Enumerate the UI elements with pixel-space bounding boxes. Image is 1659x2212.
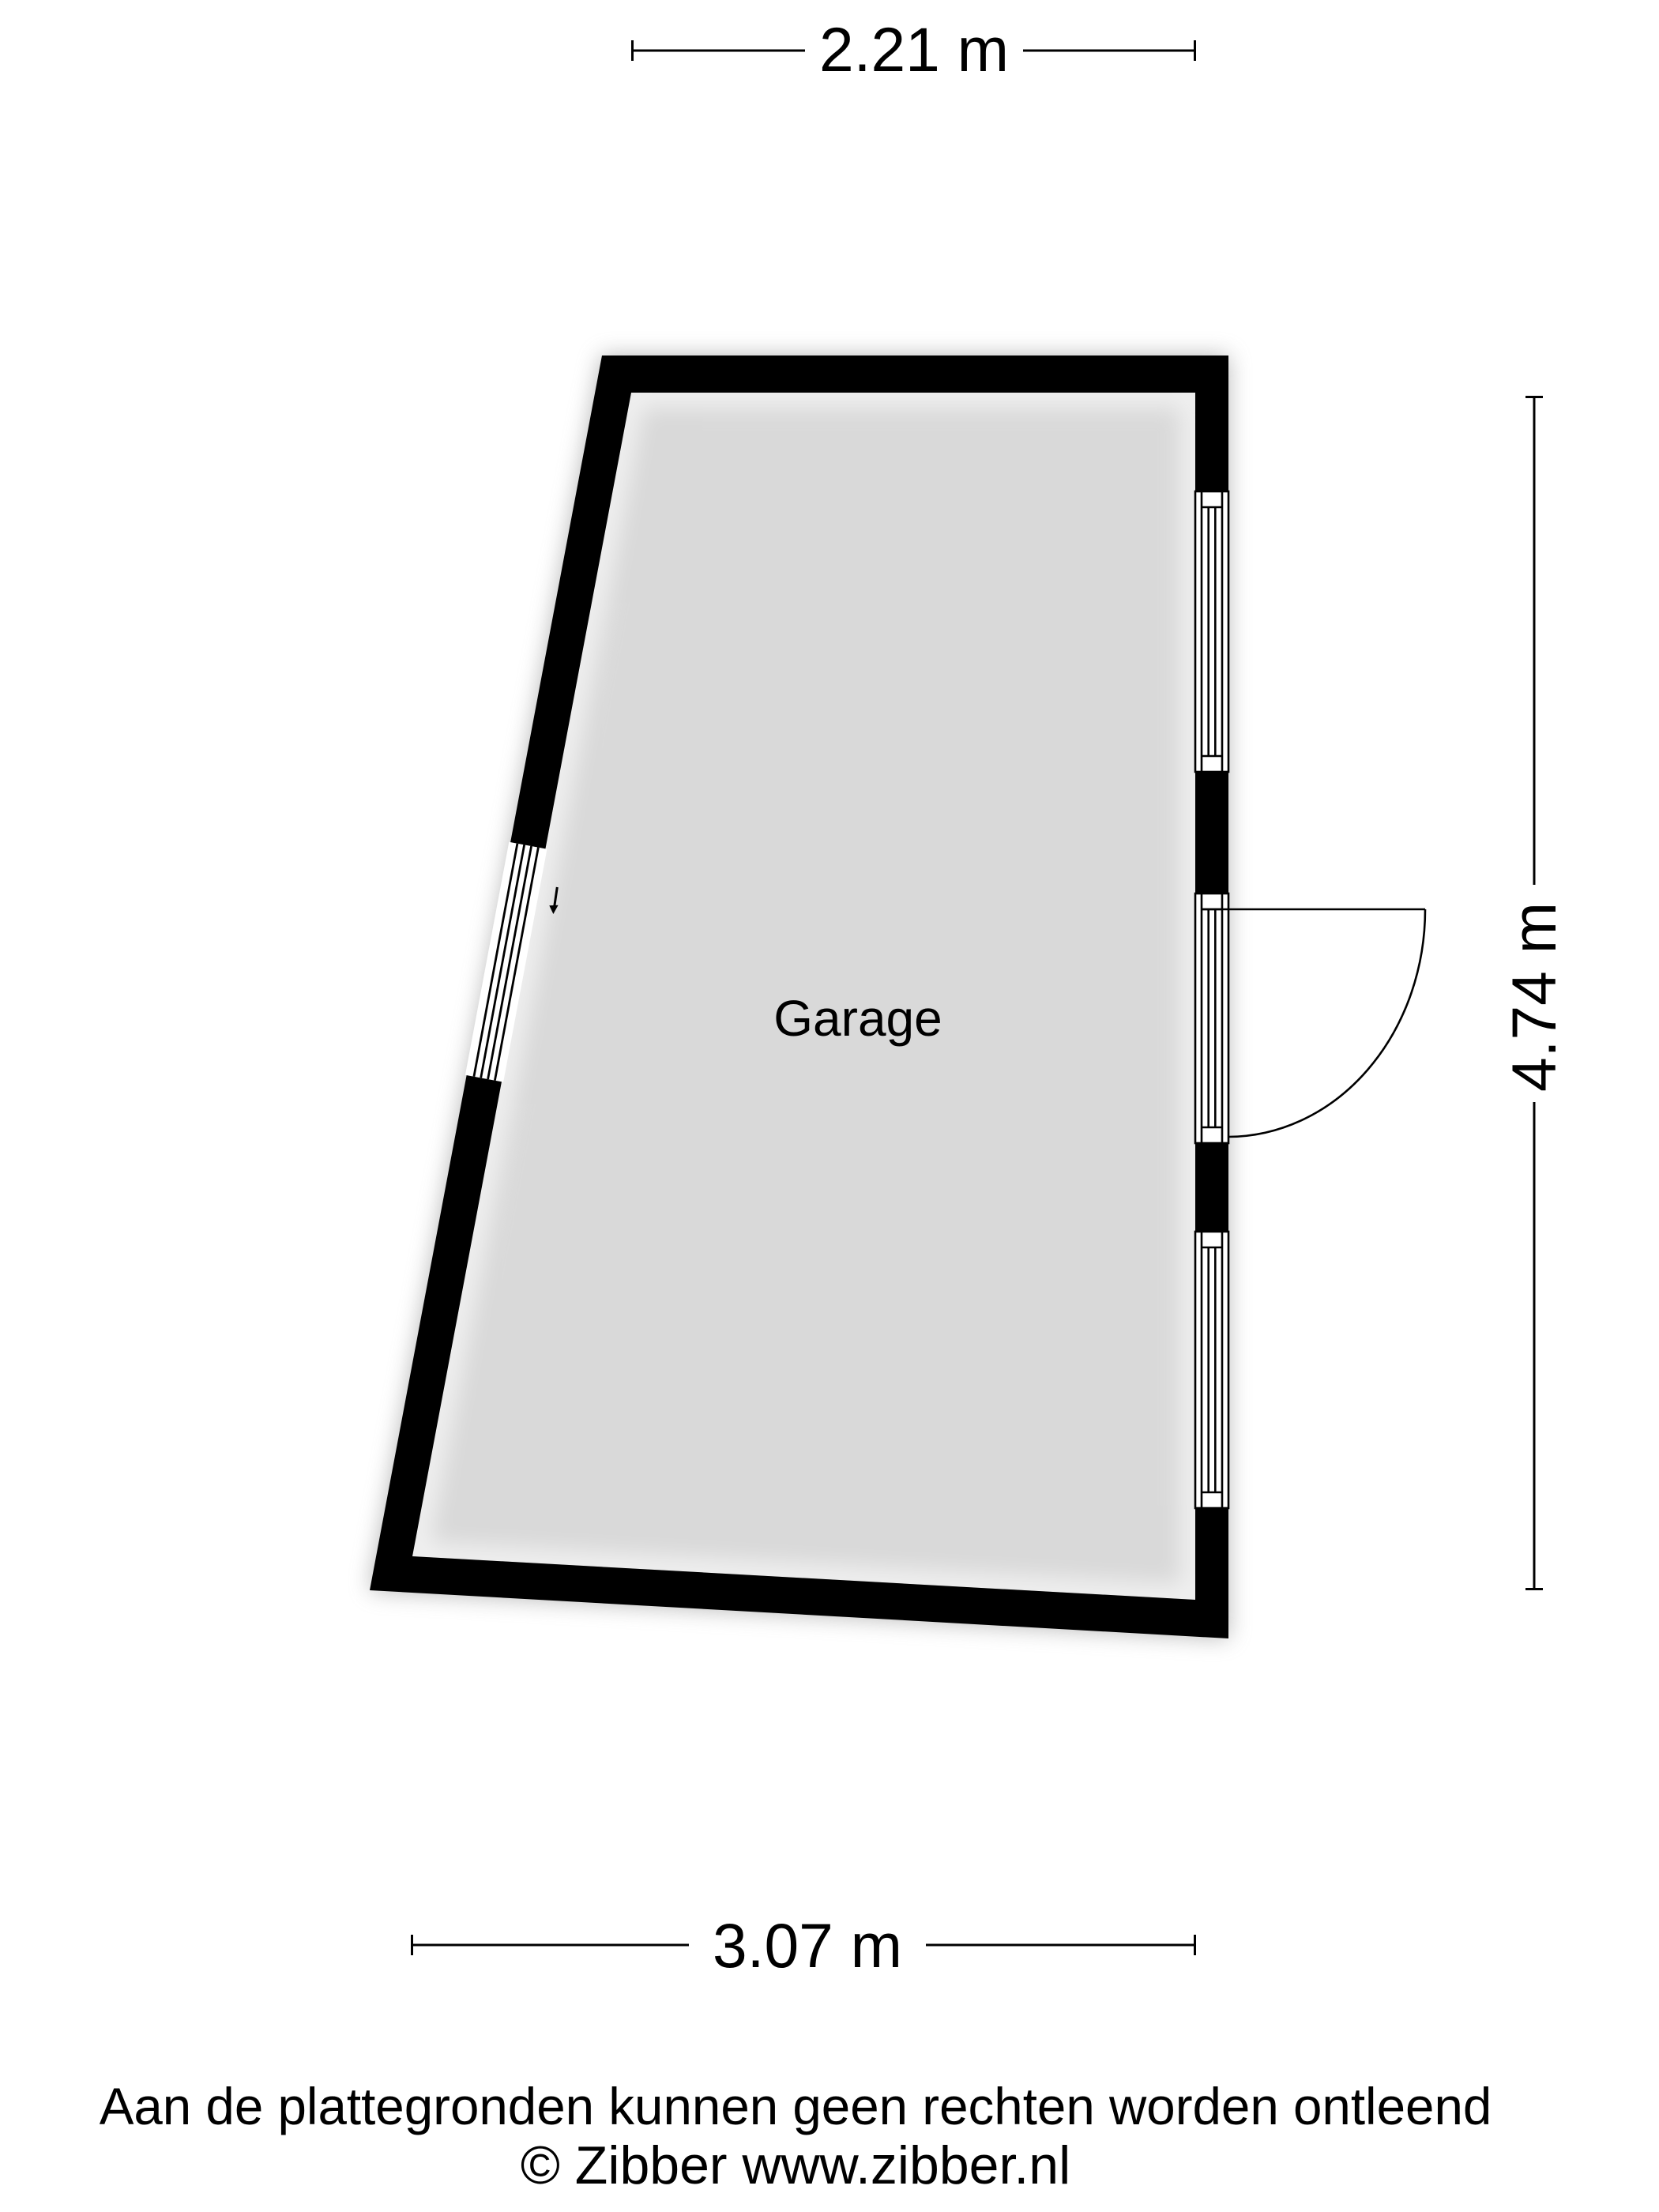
svg-text:4.74 m: 4.74 m <box>1499 902 1569 1092</box>
svg-text:© Zibber www.zibber.nl: © Zibber www.zibber.nl <box>521 2135 1070 2195</box>
svg-text:3.07 m: 3.07 m <box>713 1911 902 1981</box>
svg-text:Aan de plattegronden kunnen ge: Aan de plattegronden kunnen geen rechten… <box>100 2078 1492 2135</box>
svg-text:2.21 m: 2.21 m <box>819 15 1009 85</box>
svg-text:Garage: Garage <box>773 990 942 1047</box>
